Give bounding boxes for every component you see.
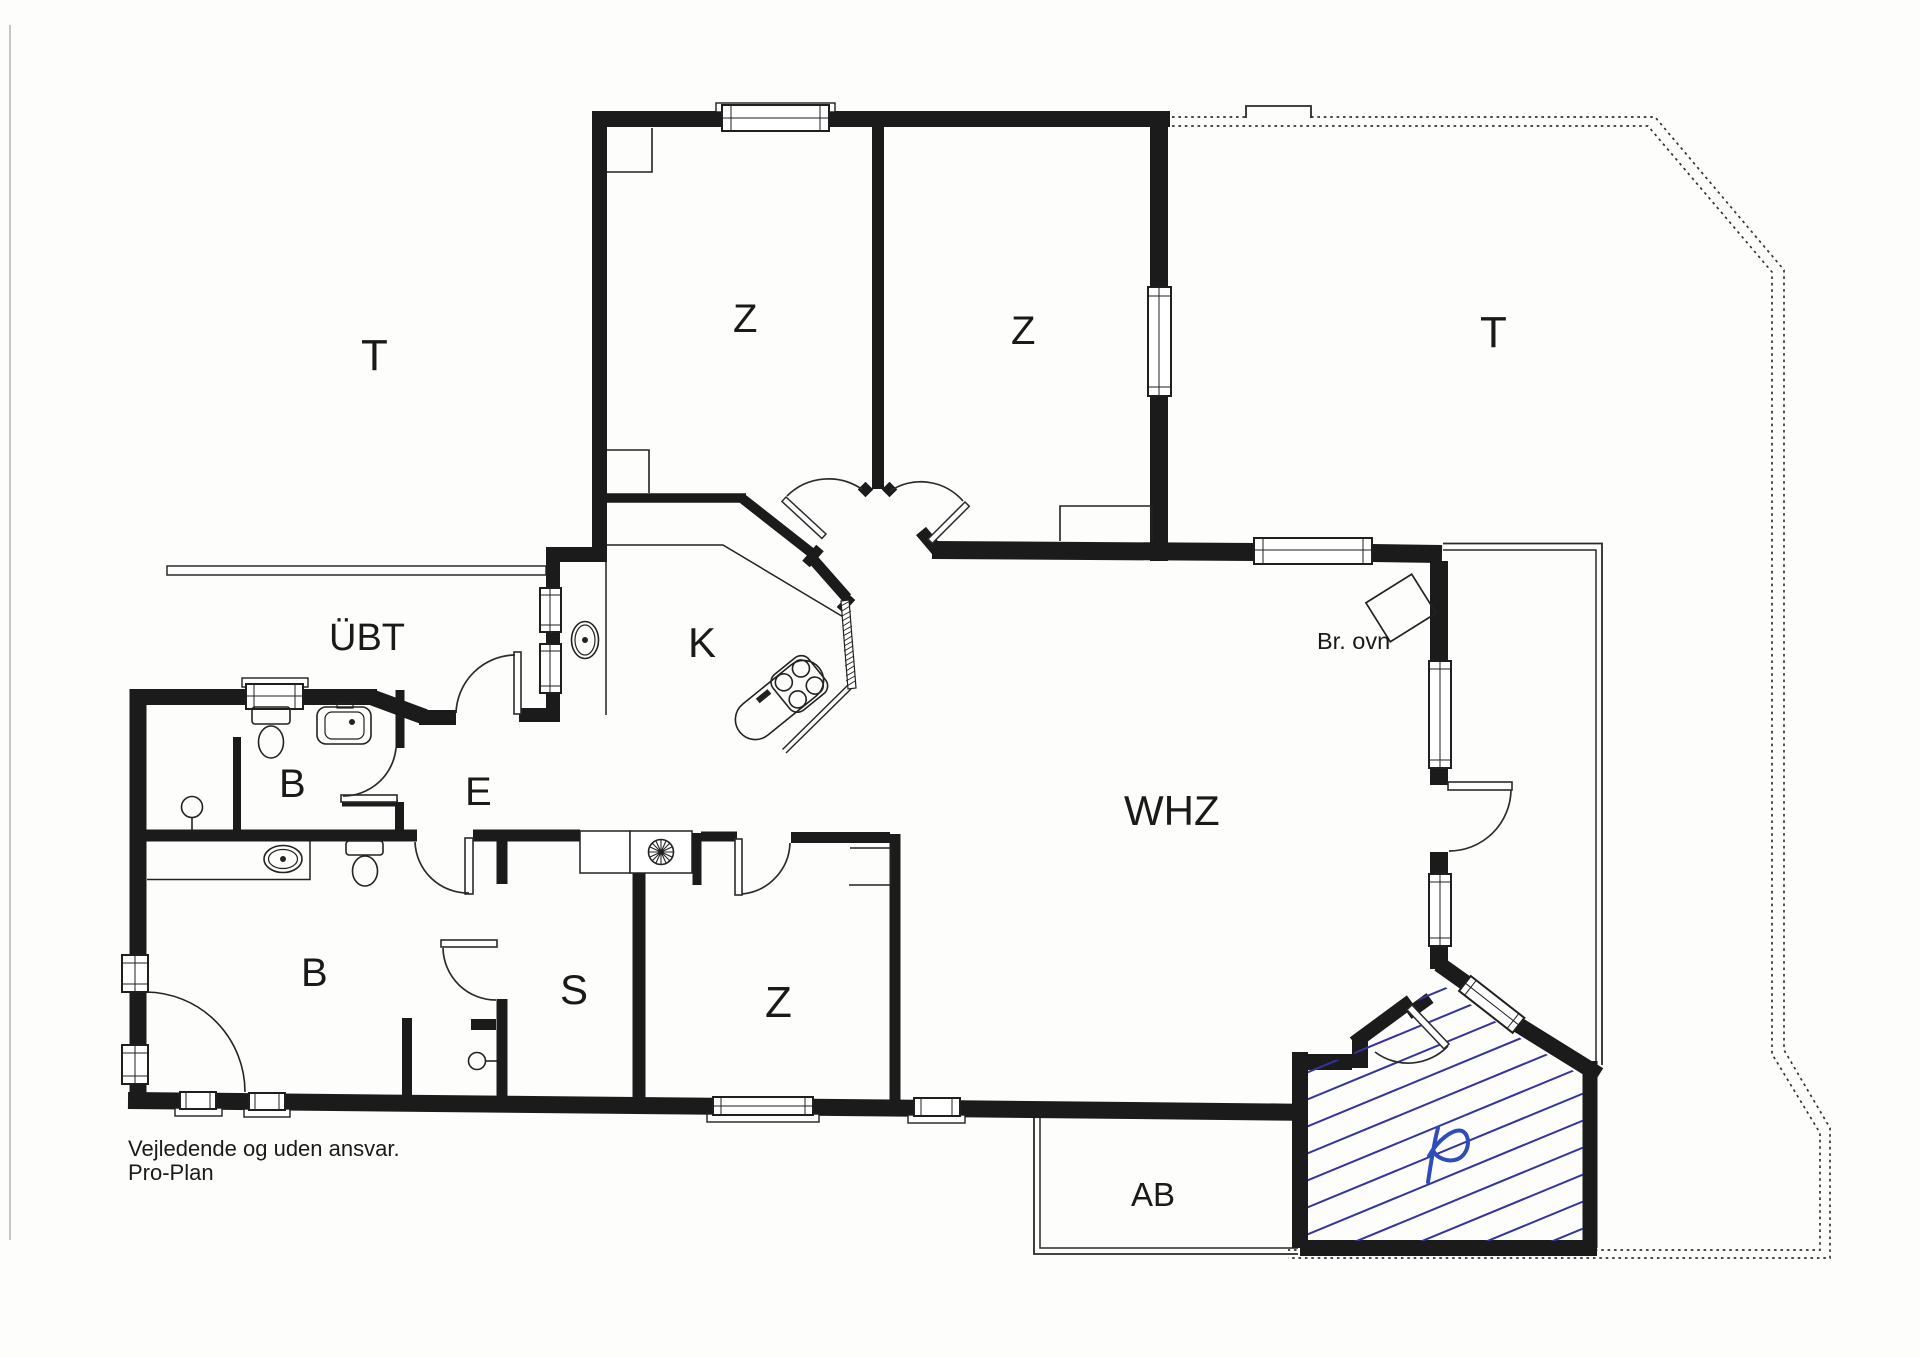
svg-text:B: B <box>301 951 328 995</box>
svg-text:Vejledende og uden ansvar.: Vejledende og uden ansvar. <box>128 1136 400 1161</box>
svg-text:Br. ovn: Br. ovn <box>1317 628 1390 654</box>
svg-text:S: S <box>560 966 588 1013</box>
svg-text:AB: AB <box>1131 1176 1175 1213</box>
svg-text:T: T <box>1480 308 1507 357</box>
svg-text:Z: Z <box>1011 309 1035 353</box>
svg-text:T: T <box>361 331 388 380</box>
svg-text:WHZ: WHZ <box>1124 787 1220 834</box>
svg-text:K: K <box>688 619 716 666</box>
svg-text:Pro-Plan: Pro-Plan <box>128 1160 214 1185</box>
svg-text:Z: Z <box>765 978 792 1027</box>
svg-text:Z: Z <box>733 297 757 341</box>
svg-text:ÜBT: ÜBT <box>329 617 405 659</box>
svg-text:E: E <box>465 770 492 814</box>
svg-text:B: B <box>279 762 306 806</box>
